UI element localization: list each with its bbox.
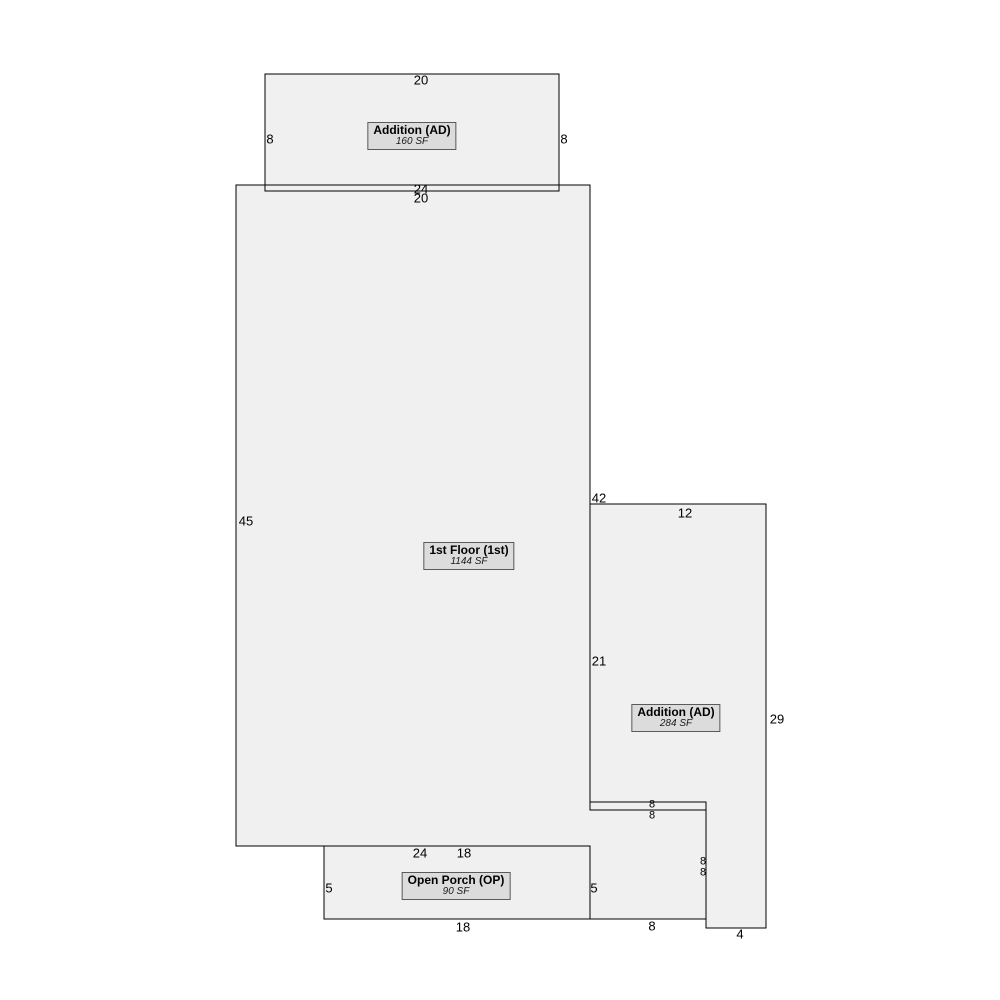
dimension-label-first-floor-right-edge: 42 bbox=[592, 492, 606, 505]
dimension-label-addition-top-left-edge: 8 bbox=[266, 133, 273, 146]
dimension-label-addition-right-tab-left-edge: 8 bbox=[700, 868, 706, 879]
area-sqft: 160 SF bbox=[373, 137, 450, 147]
dimension-label-addition-top-bottom-edge: 20 bbox=[414, 192, 428, 205]
dimension-label-addition-right-left-edge: 21 bbox=[592, 655, 606, 668]
area-label-first-floor: 1st Floor (1st) 1144 SF bbox=[423, 542, 514, 570]
area-sqft: 284 SF bbox=[637, 719, 714, 729]
dimension-label-open-porch-top-edge: 18 bbox=[457, 847, 471, 860]
dimension-label-open-porch-right-edge: 5 bbox=[590, 882, 597, 895]
dimension-label-addition-right-tab-bottom-edge: 4 bbox=[736, 928, 743, 941]
area-label-addition-right: Addition (AD) 284 SF bbox=[631, 704, 720, 732]
dimension-label-addition-right-notch-top-edge: 8 bbox=[649, 811, 655, 822]
dimension-label-addition-top-top-edge: 20 bbox=[414, 74, 428, 87]
dimension-label-open-porch-left-edge: 5 bbox=[325, 882, 332, 895]
dimension-label-open-porch-bottom-edge: 18 bbox=[456, 921, 470, 934]
dimension-label-first-floor-left-edge: 45 bbox=[239, 515, 253, 528]
area-label-open-porch: Open Porch (OP) 90 SF bbox=[402, 872, 511, 900]
dimension-label-addition-right-top-edge: 12 bbox=[678, 507, 692, 520]
dimension-label-addition-top-right-edge: 8 bbox=[560, 133, 567, 146]
dimension-label-first-floor-step-bottom-edge: 8 bbox=[648, 920, 655, 933]
area-sqft: 1144 SF bbox=[429, 557, 508, 567]
floorplan-outlines bbox=[0, 0, 1000, 1000]
floorplan-sketch: Addition (AD) 160 SF 1st Floor (1st) 114… bbox=[0, 0, 1000, 1000]
area-sqft: 90 SF bbox=[408, 887, 505, 897]
dimension-label-addition-right-right-edge: 29 bbox=[770, 713, 784, 726]
area-label-addition-top: Addition (AD) 160 SF bbox=[367, 122, 456, 150]
dimension-label-first-floor-bottom-edge: 24 bbox=[413, 847, 427, 860]
